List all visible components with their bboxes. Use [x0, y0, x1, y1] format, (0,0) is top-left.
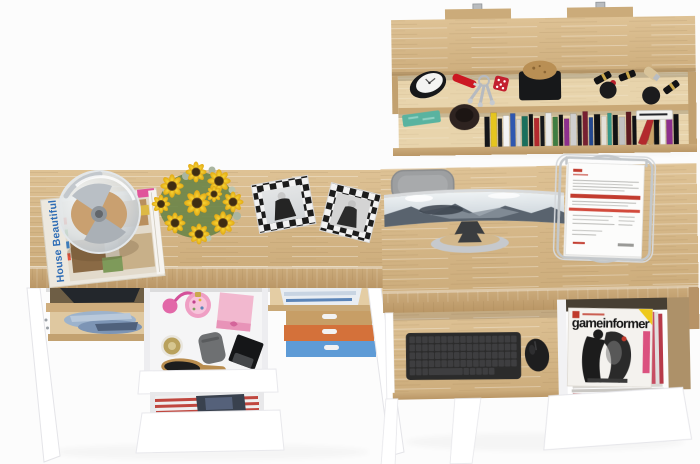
- shelf-side-panel: [688, 72, 697, 146]
- sunflower: [222, 191, 243, 212]
- sunflower: [206, 186, 222, 202]
- magazine-drawer: gameinformer: [541, 297, 692, 450]
- striped-fabric-drawer: [136, 392, 284, 453]
- gaming-magazine-title-text: gameinformer: [572, 315, 650, 331]
- dome-lamp: [58, 171, 140, 253]
- cream-jar: [161, 335, 183, 357]
- makeup-drawer: [144, 286, 268, 382]
- gameinformer-magazine: gameinformer: [567, 308, 652, 387]
- keyboard: [406, 332, 521, 380]
- pink-gift-box: [216, 292, 254, 331]
- cubby-shelf-edge: [46, 303, 158, 312]
- right-desk-side: [689, 287, 700, 329]
- sunflower: [188, 223, 209, 244]
- lower-drawer-front: [136, 410, 284, 453]
- sunflower: [152, 195, 171, 214]
- dark-clothes: [60, 288, 140, 303]
- scene-canvas: House Beautiful: [0, 0, 700, 464]
- folded-cloth: [280, 287, 362, 306]
- valet-tray: [519, 60, 562, 100]
- document-tray: [553, 154, 655, 263]
- sunflower: [211, 211, 234, 234]
- wall-shelf: [391, 1, 697, 156]
- flat-book: [636, 110, 672, 120]
- sunflower: [164, 212, 185, 233]
- sunflower: [160, 174, 183, 197]
- sunflower: [185, 161, 206, 182]
- paper-stack: [565, 163, 644, 257]
- photo-frame-left: [251, 175, 316, 233]
- magazine-drawer-front: [543, 387, 692, 450]
- product-render: House Beautiful: [0, 0, 700, 464]
- keyboard-tray: [385, 309, 574, 400]
- sunflower: [184, 190, 210, 216]
- makeup-drawer-front: [138, 369, 278, 394]
